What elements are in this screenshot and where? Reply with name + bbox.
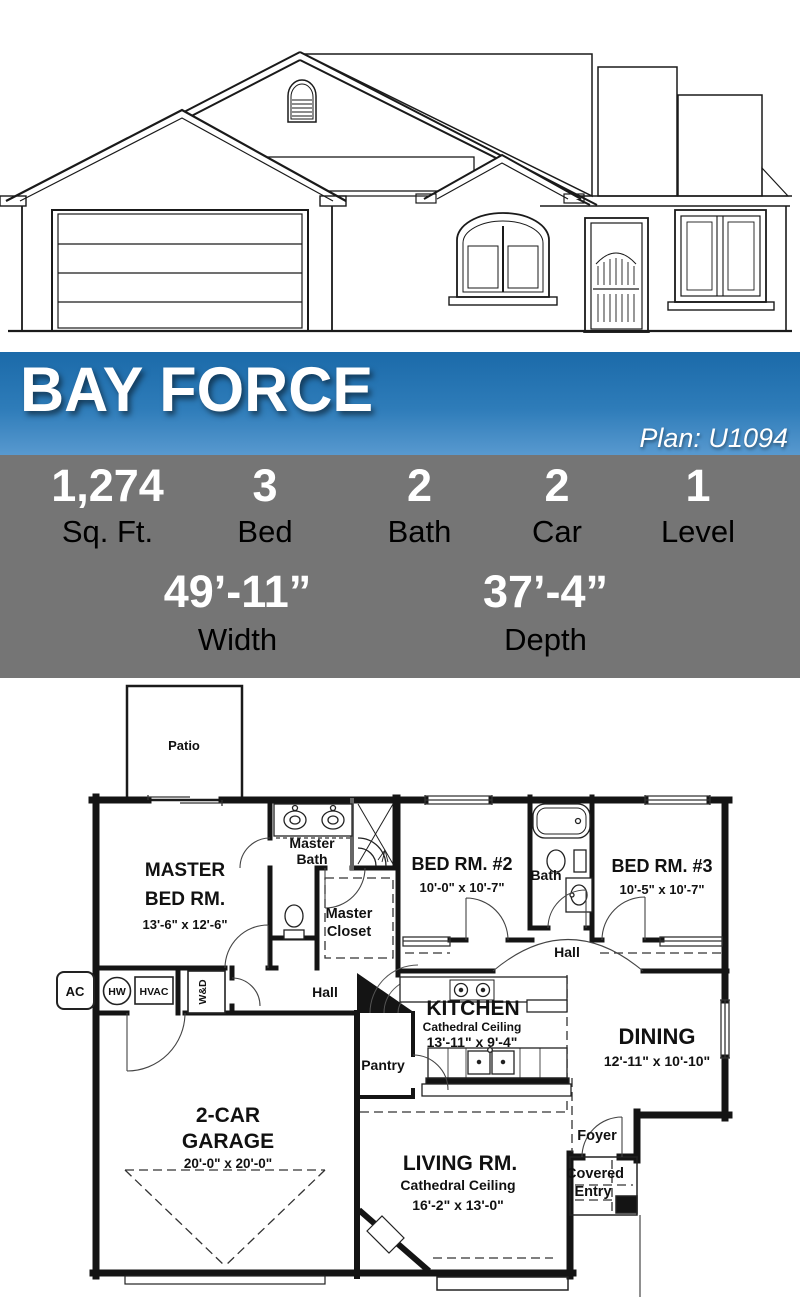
kitchen-dim: 13'-11" x 9'-4": [427, 1034, 518, 1050]
living-label-2: Cathedral Ceiling: [400, 1177, 515, 1193]
garage-dim: 20'-0" x 20'-0": [184, 1156, 272, 1171]
hall-center-label: Hall: [554, 944, 580, 960]
master-vanity-sinks: [274, 804, 352, 836]
living-label-1: LIVING RM.: [403, 1152, 517, 1175]
bed3-label: BED RM. #3: [611, 856, 712, 876]
living-dim: 16'-2" x 13'-0": [412, 1197, 504, 1213]
patio-label: Patio: [168, 738, 200, 753]
stat-sqft-value: 1,274: [15, 461, 200, 511]
master-bed-dim: 13'-6" x 12'-6": [142, 917, 227, 932]
attic-vent-icon: [288, 80, 316, 122]
wd-label: W&D: [197, 979, 209, 1004]
stat-level-label: Level: [628, 515, 768, 549]
stat-bath-value: 2: [352, 461, 487, 511]
bath-sink: [566, 878, 592, 912]
floor-plan-section: Patio MASTER BED RM. 13'-6" x 12'-6" Mas…: [0, 678, 800, 1300]
title-banner: BAY FORCE Plan: U1094: [0, 352, 800, 455]
stat-width-label: Width: [90, 623, 385, 657]
stat-bed-label: Bed: [205, 515, 325, 549]
stat-car-label: Car: [492, 515, 622, 549]
floor-plan-drawing: Patio MASTER BED RM. 13'-6" x 12'-6" Mas…: [0, 678, 800, 1300]
master-closet-label-2: Closet: [327, 924, 371, 940]
garage-gable: [0, 110, 346, 331]
master-closet-label-1: Master: [326, 906, 373, 922]
kitchen-island-sink: [422, 1048, 571, 1096]
dining-label: DINING: [619, 1024, 696, 1049]
stat-bed-value: 3: [205, 461, 325, 511]
hvac-label: HVAC: [140, 986, 169, 998]
master-bath-label-2: Bath: [296, 851, 327, 867]
stat-sqft-label: Sq. Ft.: [15, 515, 200, 549]
stats-bar: 1,274 Sq. Ft. 3 Bed 2 Bath 2 Car 1 Level…: [0, 455, 800, 678]
entry-label-2: Entry: [574, 1184, 611, 1200]
stat-depth-value: 37’-4”: [398, 567, 693, 617]
bed2-dim: 10'-0" x 10'-7": [419, 880, 504, 895]
kitchen-sub-label: Cathedral Ceiling: [423, 1020, 522, 1034]
entry-label-1: Covered: [566, 1166, 624, 1182]
stat-level-value: 1: [628, 461, 768, 511]
house-elevation-drawing: [0, 0, 800, 352]
dining-dim: 12'-11" x 10'-10": [604, 1053, 710, 1069]
garage-door: [52, 210, 308, 331]
stat-car-value: 2: [492, 461, 622, 511]
foyer-label: Foyer: [577, 1128, 617, 1144]
pantry-label: Pantry: [361, 1057, 405, 1073]
master-bath-label-1: Master: [289, 835, 335, 851]
garage-door-recess: [125, 1276, 325, 1284]
front-porch-slab: [437, 1277, 568, 1290]
stat-depth-label: Depth: [398, 623, 693, 657]
arched-window: [449, 213, 557, 305]
stat-bath-label: Bath: [352, 515, 487, 549]
fireplace: [359, 1210, 429, 1271]
garage-label-2: GARAGE: [182, 1130, 274, 1153]
plan-number: Plan: U1094: [639, 423, 788, 454]
page-title: BAY FORCE: [20, 354, 373, 426]
hw-label: HW: [108, 986, 126, 998]
master-bed-label-1: MASTER: [145, 860, 226, 881]
bath-label: Bath: [530, 867, 561, 883]
bath-tub: [533, 804, 590, 838]
master-toilet: [284, 905, 304, 939]
hall-left-label: Hall: [312, 984, 338, 1000]
bed2-label: BED RM. #2: [411, 854, 512, 874]
master-bed-label-2: BED RM.: [145, 889, 225, 910]
bed3-dim: 10'-5" x 10'-7": [619, 882, 704, 897]
kitchen-label: KITCHEN: [426, 997, 519, 1020]
stat-width-value: 49’-11”: [90, 567, 385, 617]
garage-label-1: 2-CAR: [196, 1104, 260, 1127]
master-shower: [358, 804, 393, 866]
plan-sheet: BAY FORCE Plan: U1094 1,274 Sq. Ft. 3 Be…: [0, 0, 800, 1300]
ac-label: AC: [66, 984, 85, 999]
